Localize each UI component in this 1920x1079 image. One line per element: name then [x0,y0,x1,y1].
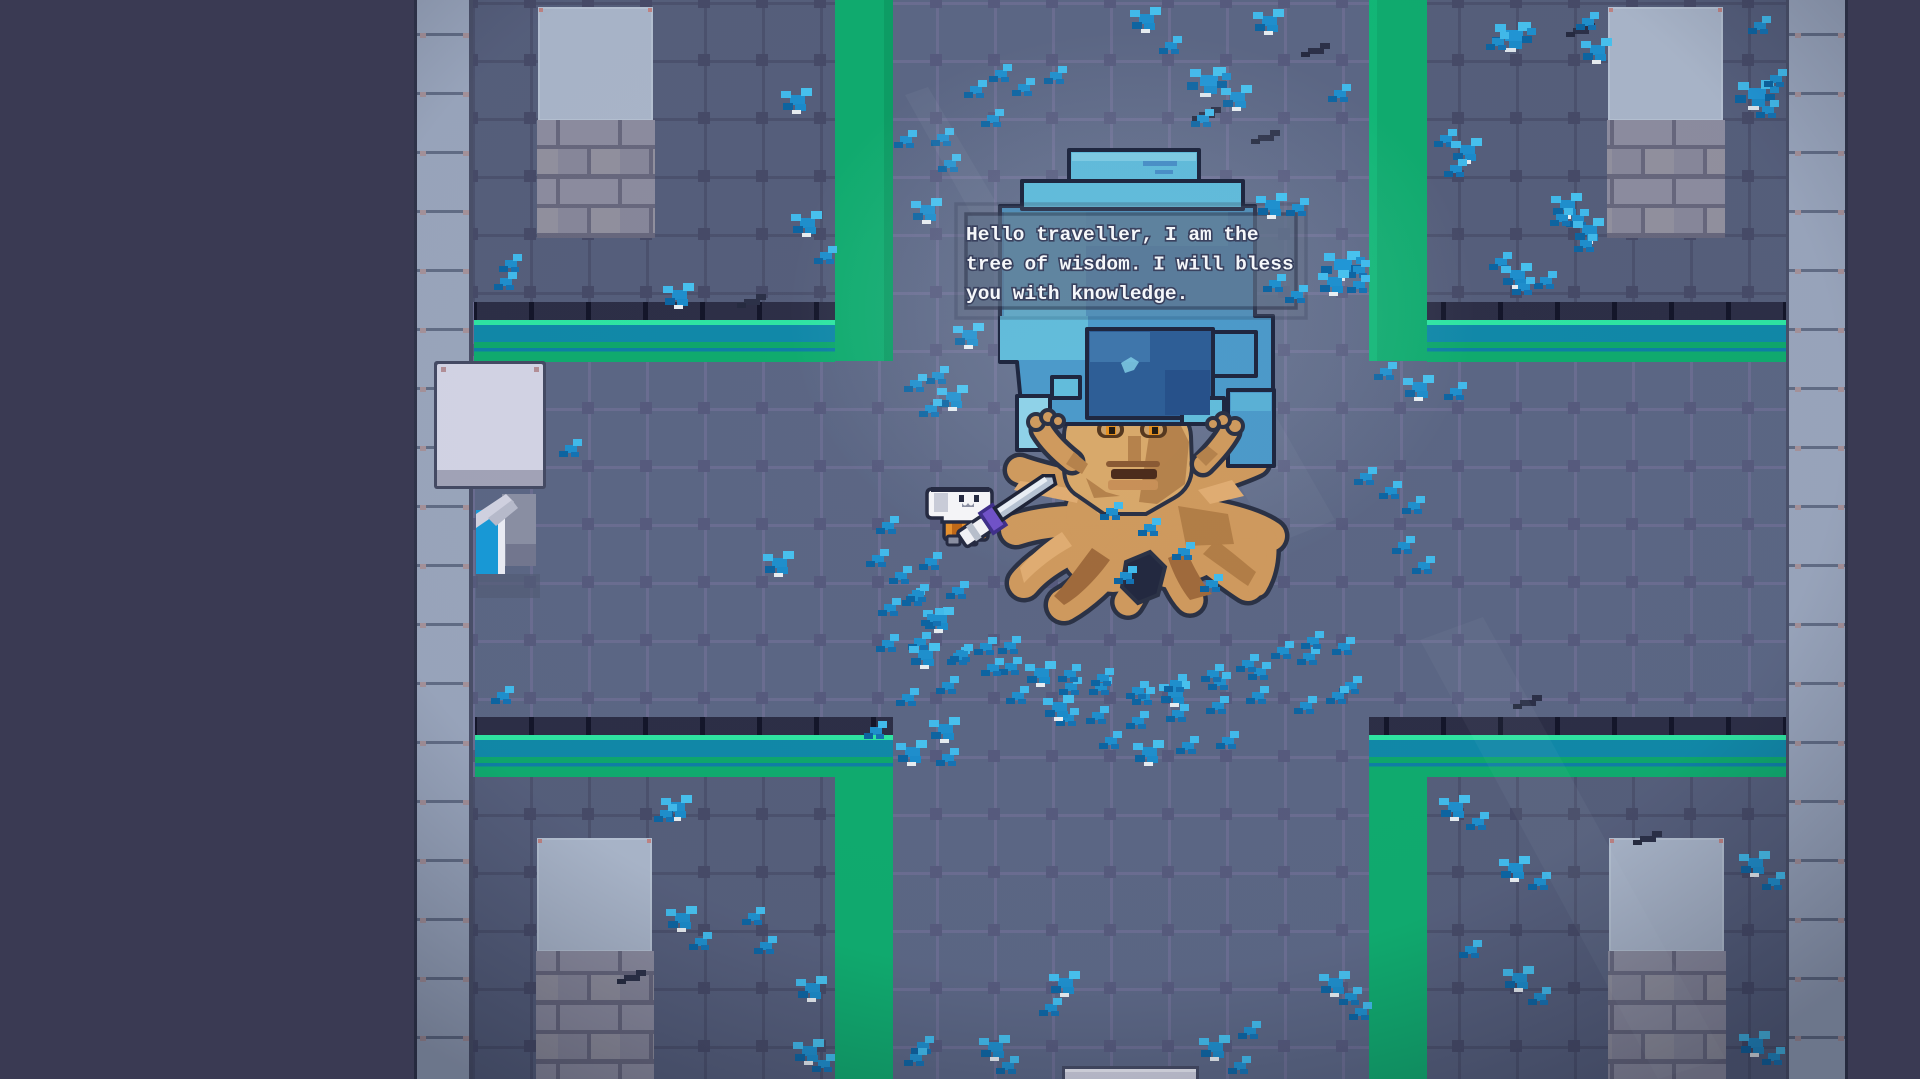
svg-text:tree of wisdom. I will bless: tree of wisdom. I will bless [966,254,1294,276]
svg-text:Hello traveller, I am the: Hello traveller, I am the [966,224,1259,246]
svg-text:you with knowledge.: you with knowledge. [966,283,1188,305]
